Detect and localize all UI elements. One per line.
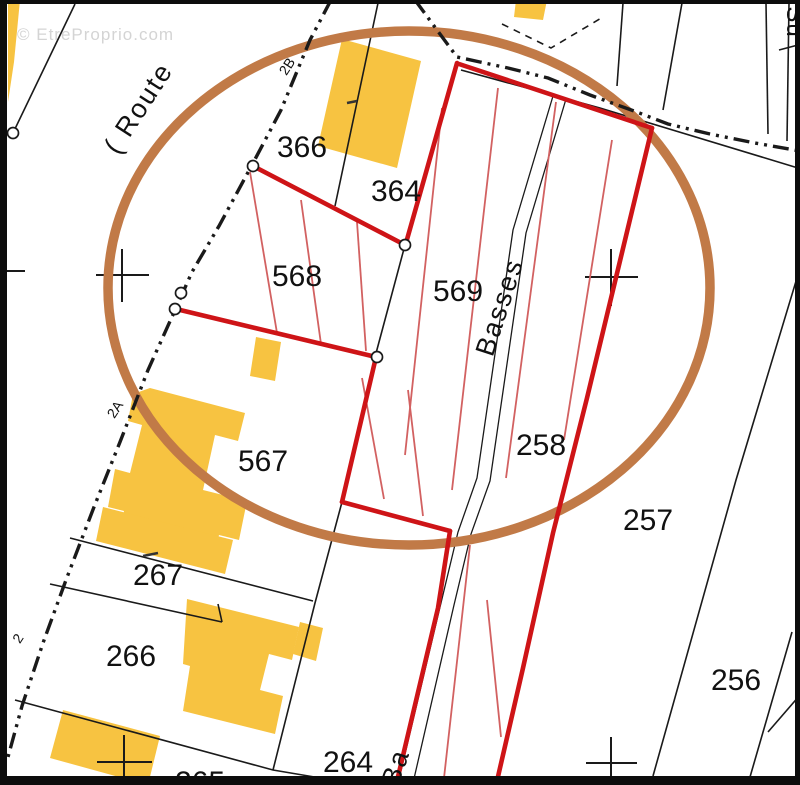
parcel-label-266: 266 [106, 640, 156, 673]
parcel-label-567: 567 [238, 445, 288, 478]
parcel-label-258: 258 [516, 429, 566, 462]
parcel-label-366: 366 [277, 131, 327, 164]
parcel-label-267: 267 [133, 559, 183, 592]
cadastral-map-screenshot: 366 364 568 569 567 267 266 258 257 256 … [0, 0, 800, 785]
parcel-label-569: 569 [433, 275, 483, 308]
frame-left [0, 0, 7, 785]
watermark-text: © EtreProprio.com [17, 25, 174, 44]
frame-right [795, 0, 800, 785]
cadastral-map: 366 364 568 569 567 267 266 258 257 256 … [0, 0, 800, 785]
survey-point [176, 288, 187, 299]
frame-top [0, 0, 800, 4]
parcel-label-264: 264 [323, 746, 373, 779]
parcel-label-257: 257 [623, 504, 673, 537]
survey-point [8, 128, 19, 139]
survey-point [400, 240, 411, 251]
survey-point [248, 161, 259, 172]
survey-point [372, 352, 383, 363]
parcel-label-364: 364 [371, 175, 421, 208]
frame-bottom [0, 776, 800, 785]
parcel-label-256: 256 [711, 664, 761, 697]
parcel-label-568: 568 [272, 260, 322, 293]
survey-point [170, 304, 181, 315]
